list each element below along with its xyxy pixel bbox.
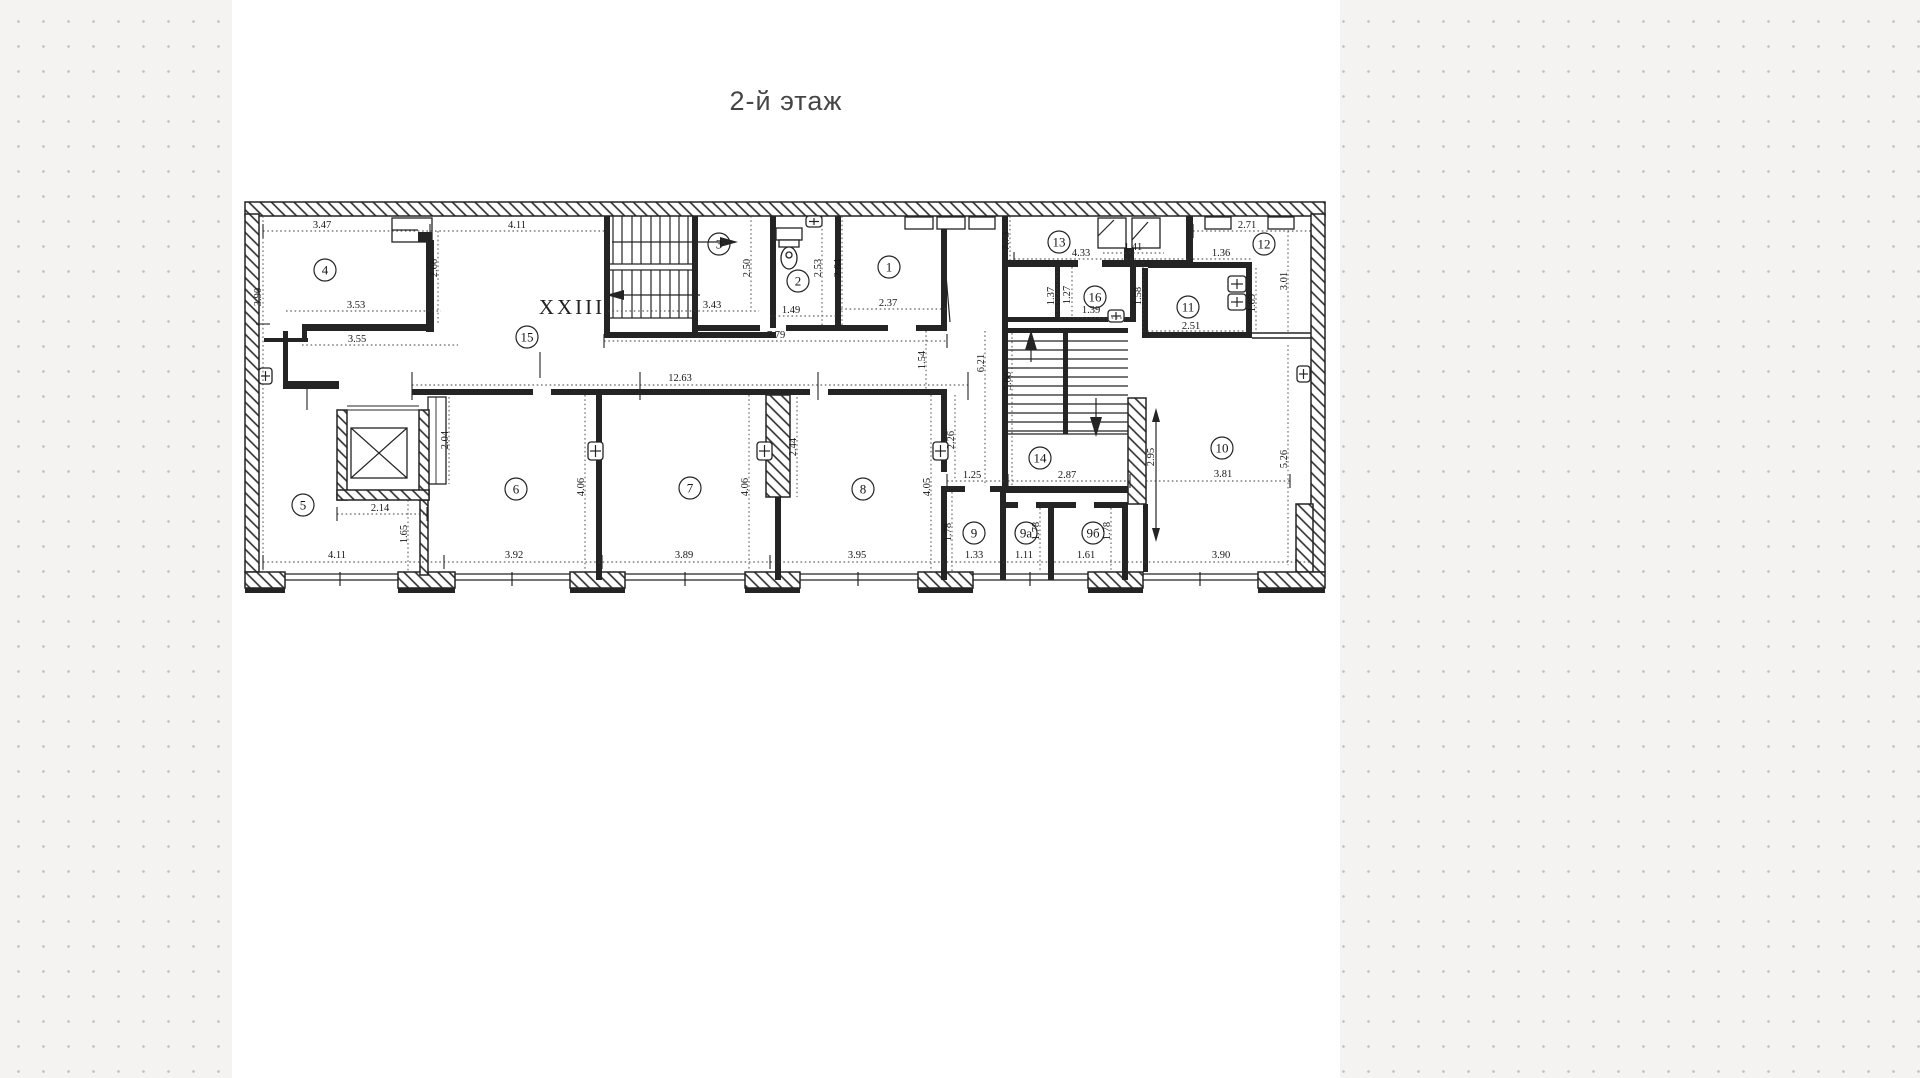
svg-text:4: 4 (322, 263, 329, 278)
room-number: 11 (1177, 296, 1199, 318)
room-number: 1 (878, 256, 900, 278)
dimension-label: 1.78 (1031, 522, 1042, 540)
room-number: 14 (1029, 447, 1051, 469)
dimension-label: 3.90 (1212, 550, 1230, 561)
svg-text:14: 14 (1034, 451, 1048, 466)
svg-text:13: 13 (1053, 235, 1066, 250)
dimension-label: 5.26 (1279, 450, 1290, 468)
dimension-label: 3.43 (703, 300, 721, 311)
svg-text:1: 1 (886, 260, 893, 275)
bottom-wall-windows (245, 572, 1325, 593)
dimension-label: 1.78 (943, 523, 954, 541)
interior-walls (264, 216, 1311, 580)
dimension-label: 5.06 (1003, 372, 1014, 390)
dimension-label: 3.01 (1279, 272, 1290, 290)
svg-text:9б: 9б (1086, 526, 1100, 541)
dimension-label: 1.36 (1212, 248, 1230, 259)
dimension-label: 7.73 (1001, 232, 1012, 250)
dimension-label: 2.71 (1238, 220, 1256, 231)
dimension-label: 2.66 (429, 259, 440, 277)
dimension-label: 1.33 (965, 550, 983, 561)
dimension-label: 1.58 (1133, 287, 1144, 305)
dimension-label: 3.92 (505, 550, 523, 561)
svg-text:6: 6 (513, 482, 520, 497)
svg-text:10: 10 (1216, 441, 1229, 456)
room-number: 2 (787, 270, 809, 292)
room-number: 5 (292, 494, 314, 516)
dimension-label: 2.44 (788, 437, 799, 456)
dimension-label: 1.78 (1102, 522, 1113, 540)
toilet-fixture (776, 228, 802, 269)
dimension-label: 3.47 (313, 220, 331, 231)
svg-text:9: 9 (971, 526, 978, 541)
svg-text:7: 7 (687, 481, 694, 496)
dimension-label: 4.05 (922, 478, 933, 496)
dimension-label: 4.33 (1072, 248, 1090, 259)
dimension-label: 4.06 (740, 478, 751, 496)
svg-text:11: 11 (1182, 300, 1195, 315)
dimension-label: 1.61 (1077, 550, 1095, 561)
dimension-label: 4.11 (328, 550, 346, 561)
room-number: 12 (1253, 233, 1275, 255)
dimension-label: 1.37 (1046, 287, 1057, 305)
vent-shafts (392, 217, 1294, 260)
dimension-label: 1.27 (1062, 286, 1073, 304)
dimension-label: 2.87 (1058, 470, 1076, 481)
svg-text:16: 16 (1089, 290, 1103, 305)
svg-text:3: 3 (716, 237, 723, 252)
dimension-label: 2.53 (813, 259, 824, 277)
dimension-label: 1.39 (1082, 305, 1100, 316)
dimension-label: 3.95 (848, 550, 866, 561)
dimension-label: 2.26 (946, 431, 957, 449)
staircase-label: XXIII (539, 295, 605, 319)
room-number: 6 (505, 478, 527, 500)
dimension-label: 2.04 (440, 430, 451, 449)
svg-text:2: 2 (795, 274, 802, 289)
dimension-label: 2.50 (742, 259, 753, 277)
dimension-label: 3.89 (675, 550, 693, 561)
dimension-label: 4.06 (576, 478, 587, 496)
room-number: 15 (516, 326, 538, 348)
svg-text:8: 8 (860, 482, 867, 497)
room-number: 8 (852, 478, 874, 500)
room-number: 9б (1082, 522, 1104, 544)
dimension-label: 3.55 (348, 334, 366, 345)
dimension-label: 2.37 (879, 298, 897, 309)
svg-text:15: 15 (521, 330, 534, 345)
room-number: 13 (1048, 231, 1070, 253)
dimension-label: 1.54 (917, 350, 928, 369)
room-number: 7 (679, 477, 701, 499)
dimension-label: 1.11 (1015, 550, 1033, 561)
elevator-shaft (337, 406, 429, 500)
room-number: 9 (963, 522, 985, 544)
dimension-label: 1.49 (782, 305, 800, 316)
room-number: 4 (314, 259, 336, 281)
dimension-label: 4.11 (508, 220, 526, 231)
dimension-label: 2.51 (1182, 321, 1200, 332)
dimension-label: 2.14 (371, 503, 390, 514)
svg-text:5: 5 (300, 498, 307, 513)
dimension-label: 7.79 (767, 330, 785, 341)
dimension-label: 3.90 (253, 288, 264, 306)
stair-labels: XXIII (539, 295, 605, 319)
room-number: 10 (1211, 437, 1233, 459)
dimension-label: 3.53 (347, 300, 365, 311)
dimension-label: 1.65 (399, 525, 410, 543)
dimension-label: 1.69 (1247, 294, 1258, 312)
svg-text:12: 12 (1258, 237, 1271, 252)
dimension-label: 2.95 (1146, 448, 1157, 466)
dimension-label: 6.21 (976, 354, 987, 372)
dimension-label: 1.41 (1124, 242, 1142, 253)
dimension-label: 3.81 (1214, 469, 1232, 480)
dimension-label: 2.64 (833, 258, 844, 277)
dimension-label: 1.25 (963, 470, 981, 481)
dimension-label: 12.63 (668, 373, 692, 384)
floor-plan-svg: 1234567899а9б10111213141516 3.474.113.90… (0, 0, 1920, 1078)
